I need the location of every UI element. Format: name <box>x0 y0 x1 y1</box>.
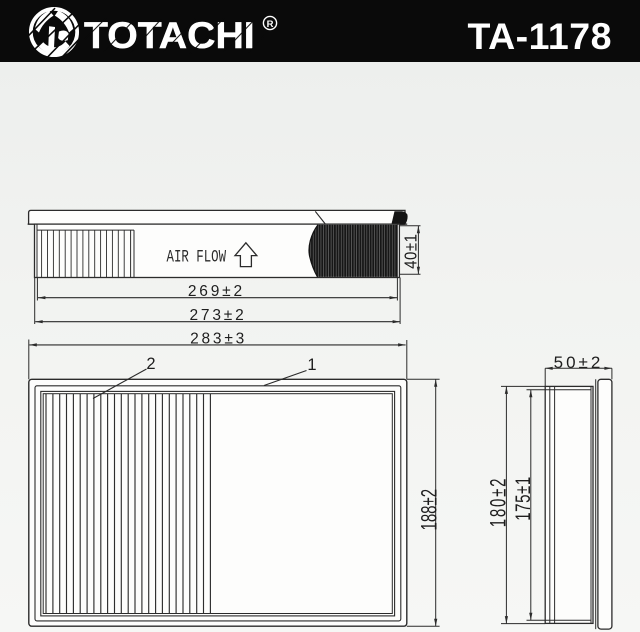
svg-text:2: 2 <box>146 355 155 373</box>
svg-text:180±2: 180±2 <box>487 477 512 528</box>
svg-text:40±1: 40±1 <box>401 234 420 269</box>
svg-text:AIR FLOW: AIR FLOW <box>167 246 227 267</box>
svg-text:50±2: 50±2 <box>554 353 604 372</box>
svg-text:1: 1 <box>307 356 316 374</box>
svg-text:175±1: 175±1 <box>510 476 534 521</box>
svg-text:188±2: 188±2 <box>418 489 443 531</box>
